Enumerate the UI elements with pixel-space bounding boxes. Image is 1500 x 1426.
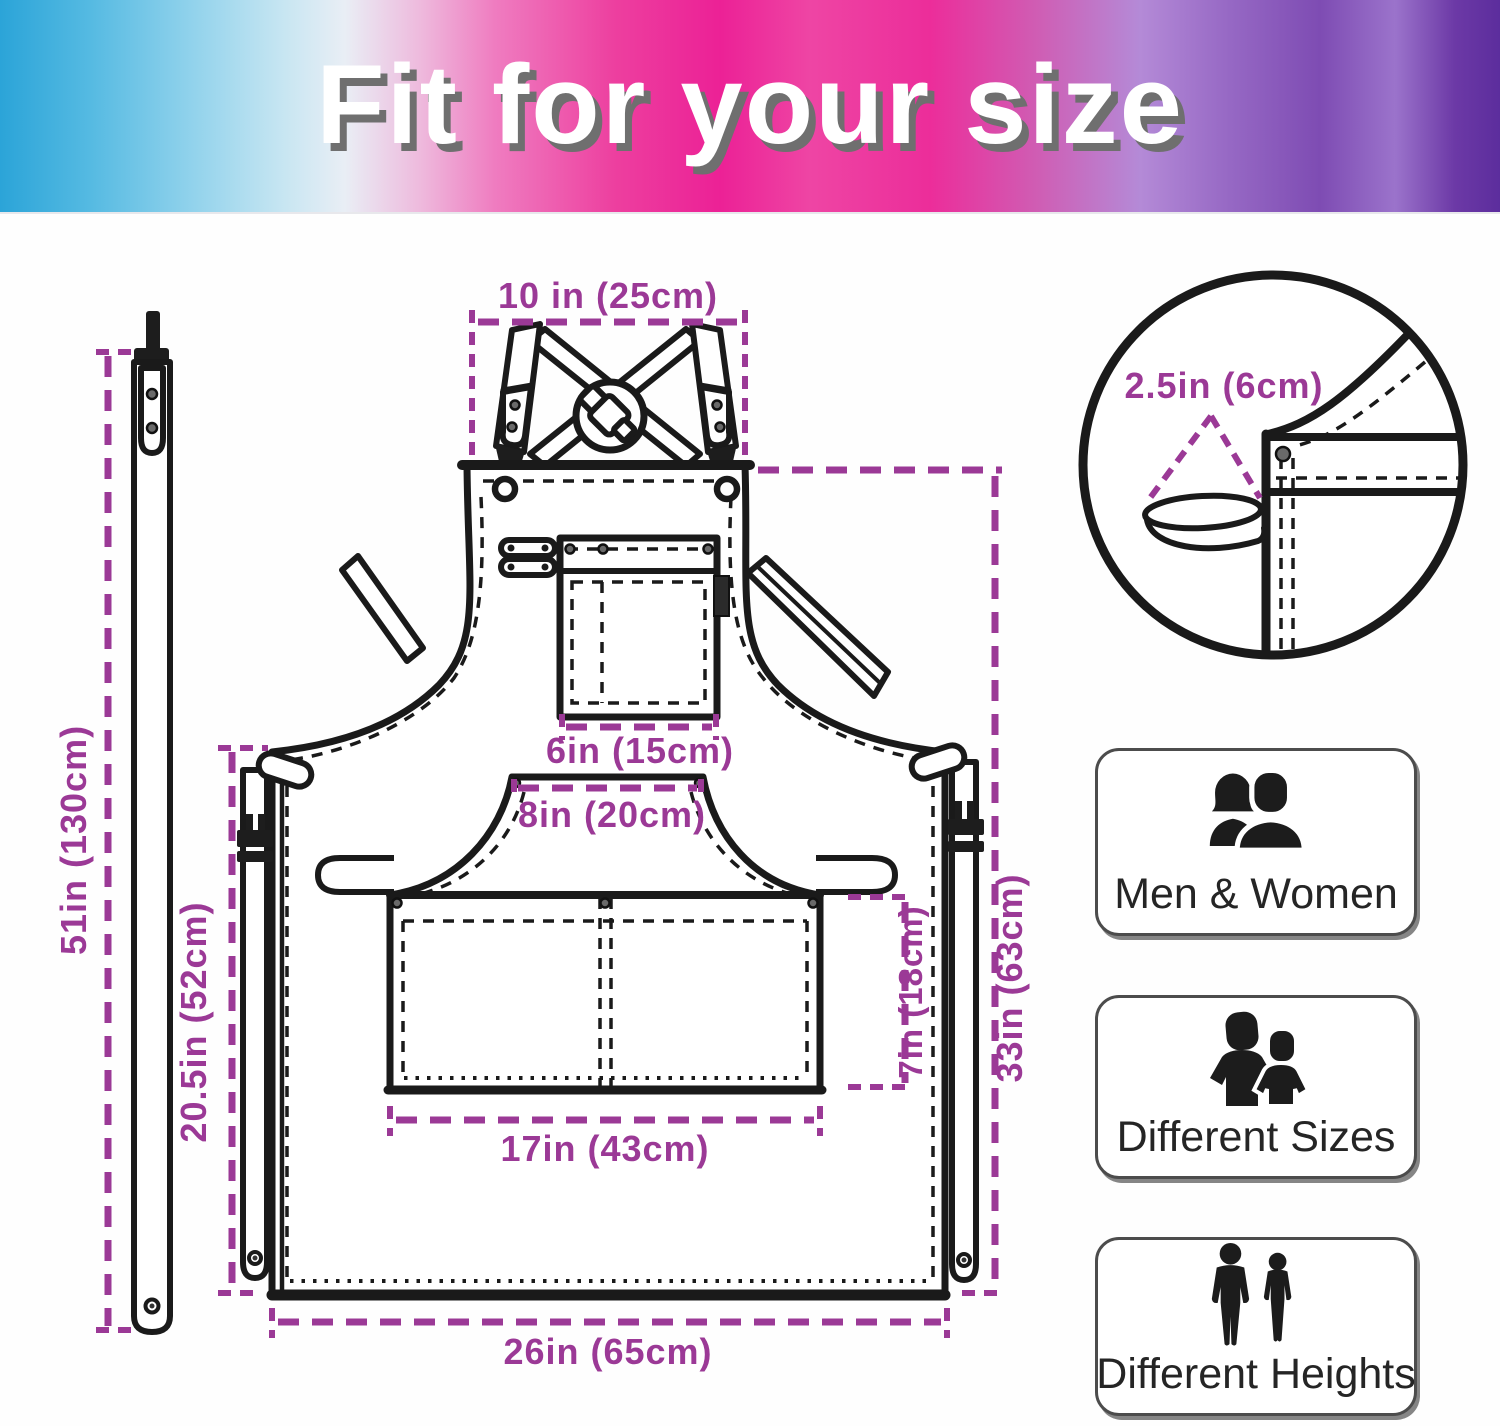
dim-label-side-length: 33in (63cm) — [989, 873, 1030, 1082]
loop-detail-callout: 2.5in (6cm) — [1083, 275, 1465, 660]
pen-loops — [501, 540, 555, 575]
men-women-icon — [1181, 751, 1331, 870]
dim-label-front-pocket-width: 17in (43cm) — [500, 1128, 709, 1169]
feature-different-heights: Different Heights — [1095, 1237, 1417, 1416]
dim-bottom-width: 26in (65cm) — [272, 1308, 947, 1372]
different-heights-icon — [1181, 1234, 1331, 1350]
dim-label-front-pocket-top-width: 8in (20cm) — [518, 794, 706, 835]
dim-label-waist-to-hem: 20.5in (52cm) — [173, 901, 214, 1142]
feature-label: Different Heights — [1096, 1350, 1415, 1399]
left-strap-end — [342, 556, 423, 661]
apron-size-diagram: 51in (130cm) 20.5in (52cm) — [0, 0, 1500, 1426]
product-infographic: Fit for your size 51in (130cm) 20.5in (5 — [0, 0, 1500, 1426]
dim-label-loop-size: 2.5in (6cm) — [1124, 365, 1323, 406]
feature-men-women: Men & Women — [1095, 748, 1417, 936]
different-sizes-icon — [1181, 998, 1331, 1113]
feature-label: Different Sizes — [1117, 1113, 1396, 1162]
dim-strap-length: 51in (130cm) — [53, 352, 140, 1330]
dim-label-bottom-width: 26in (65cm) — [503, 1331, 712, 1372]
dim-label-strap-top-width: 10 in (25cm) — [498, 275, 718, 316]
dim-label-front-pocket-height: 7in (18cm) — [892, 905, 929, 1078]
cross-straps — [495, 324, 737, 474]
dim-label-neck-strap-length: 51in (130cm) — [53, 725, 94, 955]
dim-label-chest-pocket-width: 6in (15cm) — [546, 730, 734, 771]
right-towel-bar — [816, 858, 895, 892]
feature-different-sizes: Different Sizes — [1095, 995, 1417, 1179]
left-towel-bar — [318, 858, 394, 892]
feature-label: Men & Women — [1114, 870, 1398, 919]
left-grommet-icon — [495, 479, 515, 499]
brand-tag-icon — [714, 576, 729, 616]
neck-strap-piece — [134, 311, 170, 1332]
right-grommet-icon — [717, 479, 737, 499]
chest-pocket — [560, 538, 729, 717]
